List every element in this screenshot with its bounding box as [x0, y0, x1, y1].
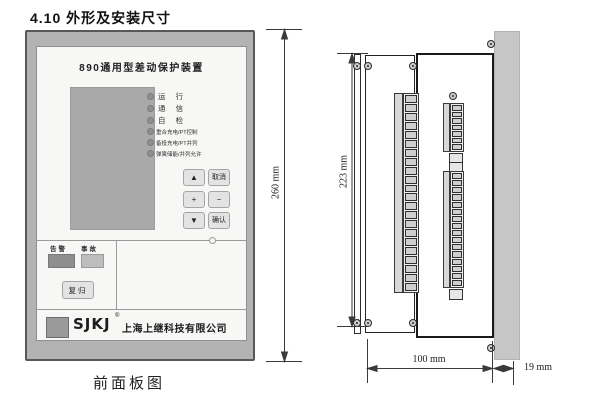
terminal-cell — [452, 144, 462, 150]
terminal-cell — [405, 211, 417, 219]
terminal-cell — [452, 118, 462, 124]
terminal-cell — [405, 104, 417, 112]
terminal-cells — [403, 93, 419, 293]
reset-button: 复归 — [62, 281, 94, 299]
minus-button: − — [208, 191, 230, 208]
terminal-cell — [405, 95, 417, 103]
fault-label: 事故 — [81, 243, 98, 253]
company-name: 上海上继科技有限公司 — [122, 320, 227, 335]
terminal-cell — [452, 194, 462, 200]
terminal-cells — [450, 171, 464, 288]
terminal-cell — [405, 265, 417, 273]
terminal-cell — [452, 125, 462, 131]
manual-page: 4.10 外形及安装尺寸 890通用型差动保护装置 运 行 通 信 自 检 重合… — [0, 0, 600, 400]
registered-mark: ® — [115, 313, 119, 319]
terminal-cell — [405, 167, 417, 175]
run-led-icon — [147, 93, 154, 100]
terminal-cell — [405, 158, 417, 166]
screw-icon — [364, 62, 372, 70]
terminal-cell — [452, 173, 462, 179]
logo-bar-divider — [37, 309, 246, 310]
rear-bracket — [354, 54, 361, 334]
terminal-cell — [405, 131, 417, 139]
terminal-cell — [452, 138, 462, 144]
terminal-cell — [405, 229, 417, 237]
screw-hole-icon — [209, 237, 216, 244]
lcd-screen — [70, 87, 155, 230]
reclose-led-icon — [147, 128, 154, 135]
confirm-button: 确认 — [208, 212, 230, 229]
selfcheck-led-label: 自 检 — [158, 115, 187, 126]
screw-icon — [409, 319, 417, 327]
up-button: ▲ — [183, 169, 205, 186]
terminal-cell — [405, 149, 417, 157]
plus-button: + — [183, 191, 205, 208]
device-title: 890通用型差动保护装置 — [37, 59, 246, 74]
comm-led-label: 通 信 — [158, 103, 187, 114]
backup-led-label: 备投充电/PT并列 — [156, 139, 198, 147]
down-button: ▼ — [183, 212, 205, 229]
terminal-cell — [405, 283, 417, 291]
terminal-cells — [450, 103, 464, 152]
terminal-cell — [452, 187, 462, 193]
dimension-label-223mm: 223 mm — [339, 142, 350, 202]
terminal-cell — [405, 113, 417, 121]
terminal-cell — [405, 176, 417, 184]
dimension-label-100mm: 100 mm — [399, 354, 459, 365]
section-heading: 4.10 外形及安装尺寸 — [30, 8, 171, 28]
terminal-carrier — [443, 171, 450, 288]
brand-logo-text: SJKJ — [73, 315, 111, 333]
spring-led-icon — [147, 150, 154, 157]
terminal-carrier — [443, 103, 450, 152]
fault-indicator — [81, 254, 104, 268]
terminal-cell — [452, 273, 462, 279]
terminal-cell — [452, 105, 462, 111]
terminal-cell — [405, 193, 417, 201]
reclose-led-label: 重合充电/PT控制 — [156, 128, 198, 136]
selfcheck-led-icon — [147, 117, 154, 124]
front-panel-caption: 前面板图 — [93, 372, 165, 393]
terminal-cell — [452, 237, 462, 243]
terminal-cell — [452, 180, 462, 186]
terminal-cell — [405, 202, 417, 210]
terminal-cell — [452, 266, 462, 272]
brand-logo-icon — [46, 317, 69, 338]
terminal-screw-icon — [449, 92, 457, 100]
terminal-cell — [405, 247, 417, 255]
terminal-cell — [452, 216, 462, 222]
cancel-button: 取消 — [208, 169, 230, 186]
dimension-label-260mm: 260 mm — [271, 153, 282, 213]
terminal-cell — [405, 185, 417, 193]
terminal-cell — [452, 259, 462, 265]
terminal-cell — [405, 238, 417, 246]
terminal-cell — [452, 209, 462, 215]
panel-vertical-divider — [116, 240, 117, 309]
mounting-screw-icon — [487, 40, 495, 48]
mounting-screw-icon — [487, 344, 495, 352]
terminal-cell — [452, 223, 462, 229]
mounting-panel — [494, 31, 520, 360]
screw-icon — [353, 62, 361, 70]
lower-terminal-block — [443, 171, 462, 288]
front-panel-drawing: 890通用型差动保护装置 运 行 通 信 自 检 重合充电/PT控制 备投充电/… — [25, 30, 255, 361]
terminal-cell — [405, 220, 417, 228]
terminal-cell — [452, 202, 462, 208]
terminal-cell — [405, 256, 417, 264]
rear-terminal-block — [394, 93, 417, 293]
upper-terminal-block — [443, 103, 462, 152]
screw-icon — [364, 319, 372, 327]
terminal-cell — [405, 274, 417, 282]
comm-led-icon — [147, 105, 154, 112]
dimension-label-19mm: 19 mm — [524, 362, 552, 373]
terminal-cell — [405, 122, 417, 130]
terminal-carrier — [394, 93, 403, 293]
screw-icon — [409, 62, 417, 70]
terminal-cell — [452, 251, 462, 257]
terminal-cell — [452, 244, 462, 250]
front-panel-face: 890通用型差动保护装置 运 行 通 信 自 检 重合充电/PT控制 备投充电/… — [36, 46, 247, 341]
terminal-cell — [452, 112, 462, 118]
alarm-label: 告警 — [50, 243, 67, 253]
terminal-cell — [452, 230, 462, 236]
backup-led-icon — [147, 139, 154, 146]
run-led-label: 运 行 — [158, 91, 187, 102]
alarm-indicator — [48, 254, 75, 268]
terminal-end-piece — [449, 289, 463, 300]
spring-led-label: 弹簧储能/并列允许 — [156, 150, 202, 158]
terminal-cell — [452, 280, 462, 286]
terminal-cell — [452, 131, 462, 137]
screw-icon — [353, 319, 361, 327]
terminal-cell — [405, 140, 417, 148]
